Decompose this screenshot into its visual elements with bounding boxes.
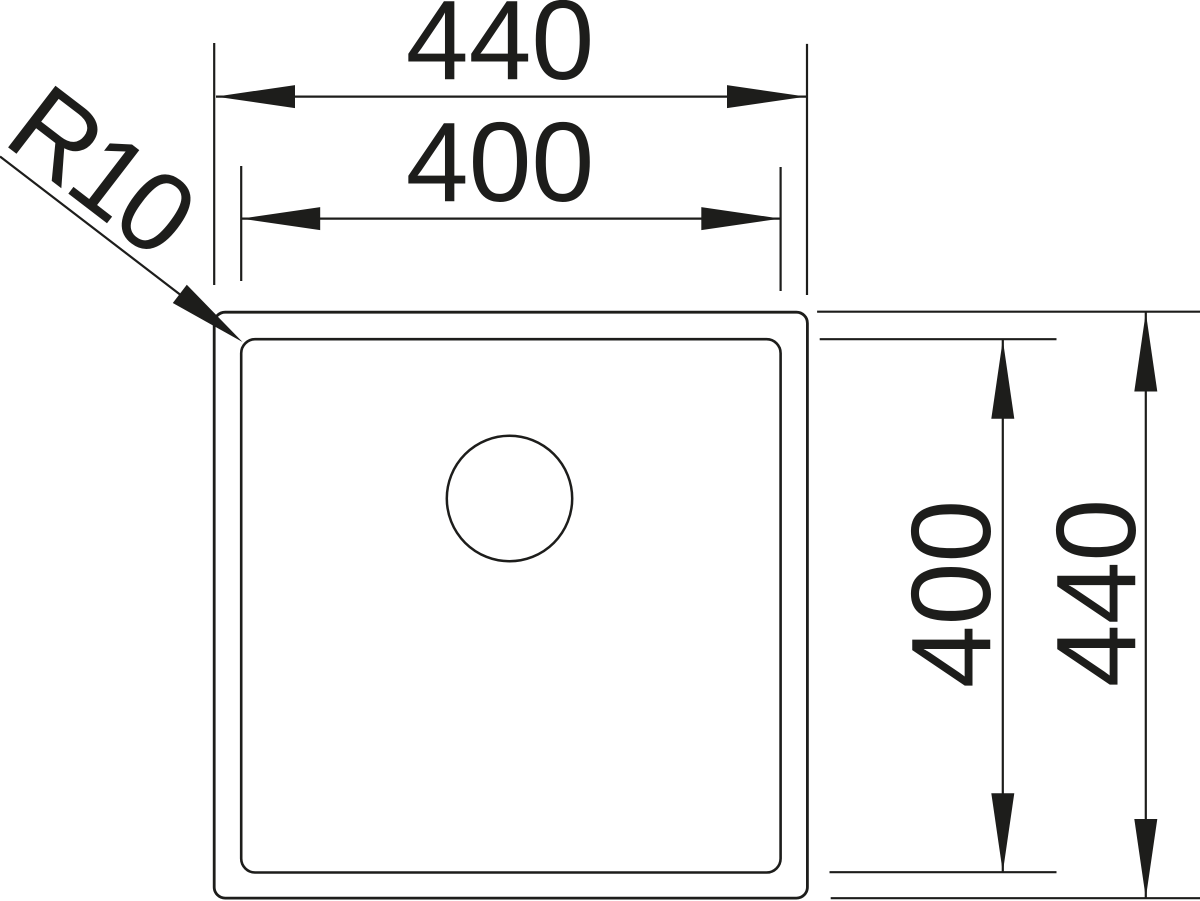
svg-text:400: 400 [406,99,595,225]
svg-text:440: 440 [406,0,595,103]
svg-text:400: 400 [888,500,1014,689]
svg-text:440: 440 [1033,499,1159,688]
